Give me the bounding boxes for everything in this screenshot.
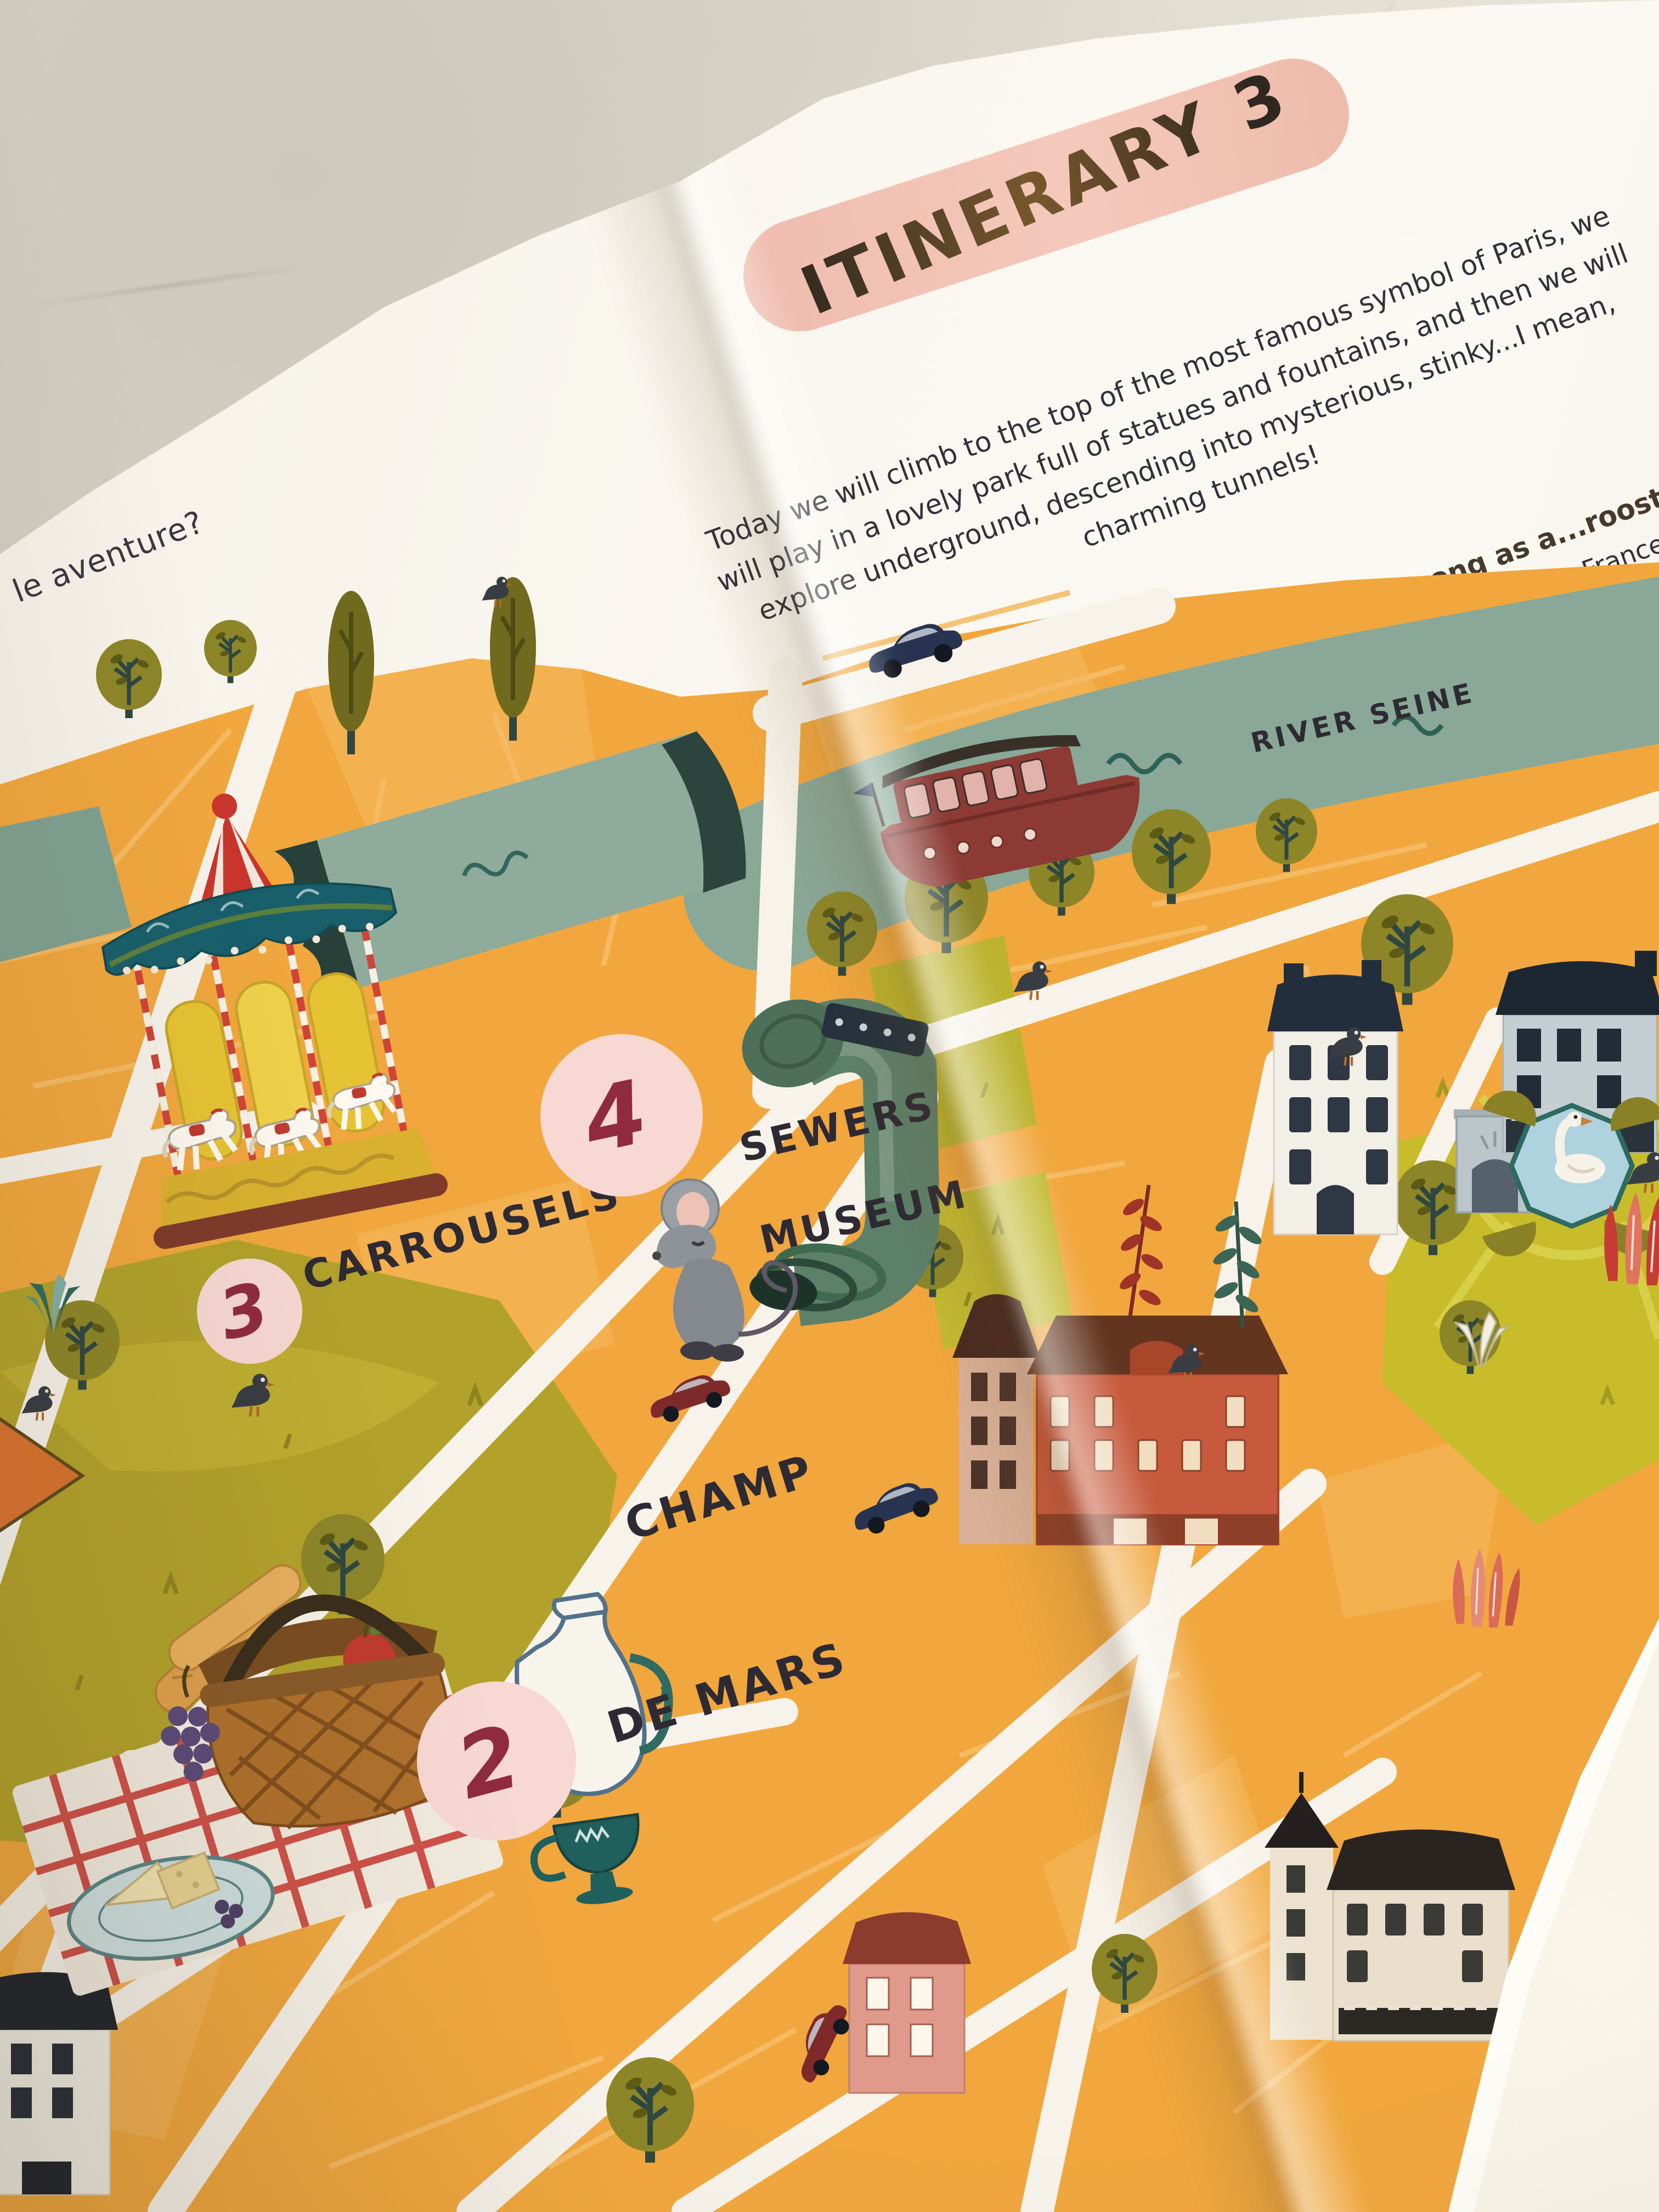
building-pink [843,1912,971,2093]
building-white-mansard [1267,960,1403,1234]
map-marker-4: 4 [540,1034,703,1197]
building-corner [0,1972,118,2194]
photo-scene: le aventure? ITINERARY 3 Today we will c… [0,0,1659,2212]
map-marker-3: 3 [197,1259,302,1364]
marble-vein [31,263,314,307]
map-marker-2: 2 [417,1681,576,1841]
